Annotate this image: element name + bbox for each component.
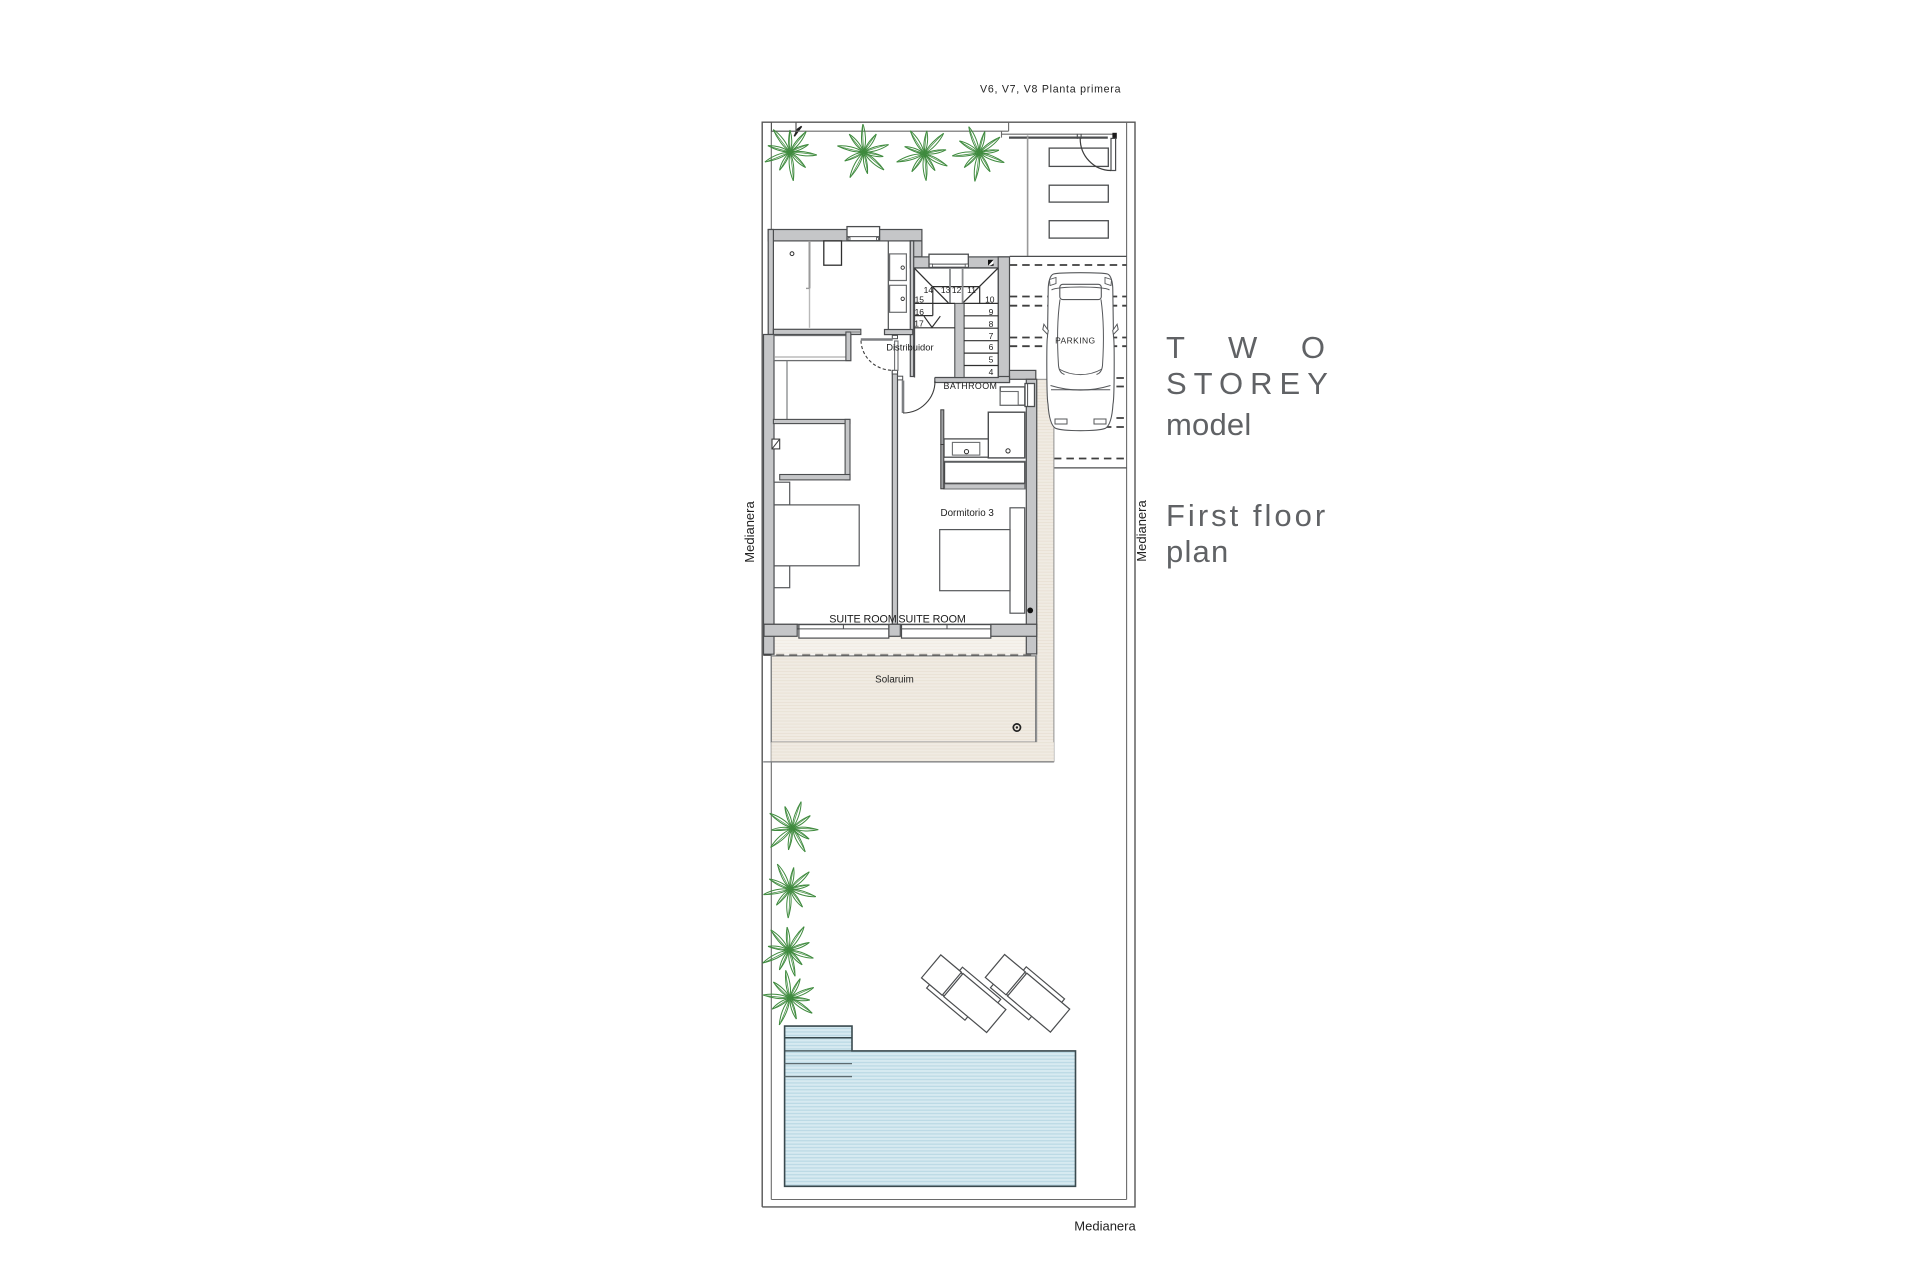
svg-text:10: 10	[985, 295, 995, 305]
svg-text:16: 16	[915, 307, 925, 317]
svg-text:15: 15	[915, 294, 925, 304]
svg-text:V6, V7, V8 Planta primera: V6, V7, V8 Planta primera	[980, 84, 1121, 96]
svg-text:Medianera: Medianera	[1074, 1219, 1136, 1234]
svg-text:13: 13	[941, 285, 951, 295]
svg-text:SUITE ROOM: SUITE ROOM	[898, 613, 965, 625]
svg-text:11: 11	[967, 285, 976, 295]
svg-text:9: 9	[989, 307, 994, 317]
svg-text:PARKING: PARKING	[1055, 336, 1095, 346]
svg-text:17: 17	[914, 319, 924, 329]
svg-text:Medianera: Medianera	[1134, 500, 1149, 562]
svg-text:Distribuidor: Distribuidor	[886, 341, 933, 352]
svg-text:4: 4	[989, 367, 994, 377]
svg-text:BATHROOM: BATHROOM	[944, 381, 998, 391]
svg-text:SUITE ROOM: SUITE ROOM	[829, 613, 896, 625]
svg-text:Medianera: Medianera	[742, 501, 757, 563]
svg-text:14: 14	[924, 285, 934, 295]
svg-text:Dormitorio 3: Dormitorio 3	[941, 508, 995, 519]
svg-text:12: 12	[952, 285, 962, 295]
svg-text:Solaruim: Solaruim	[875, 675, 914, 686]
svg-text:5: 5	[989, 354, 994, 364]
svg-text:6: 6	[989, 342, 994, 352]
svg-text:7: 7	[989, 331, 994, 341]
svg-text:8: 8	[989, 319, 994, 329]
